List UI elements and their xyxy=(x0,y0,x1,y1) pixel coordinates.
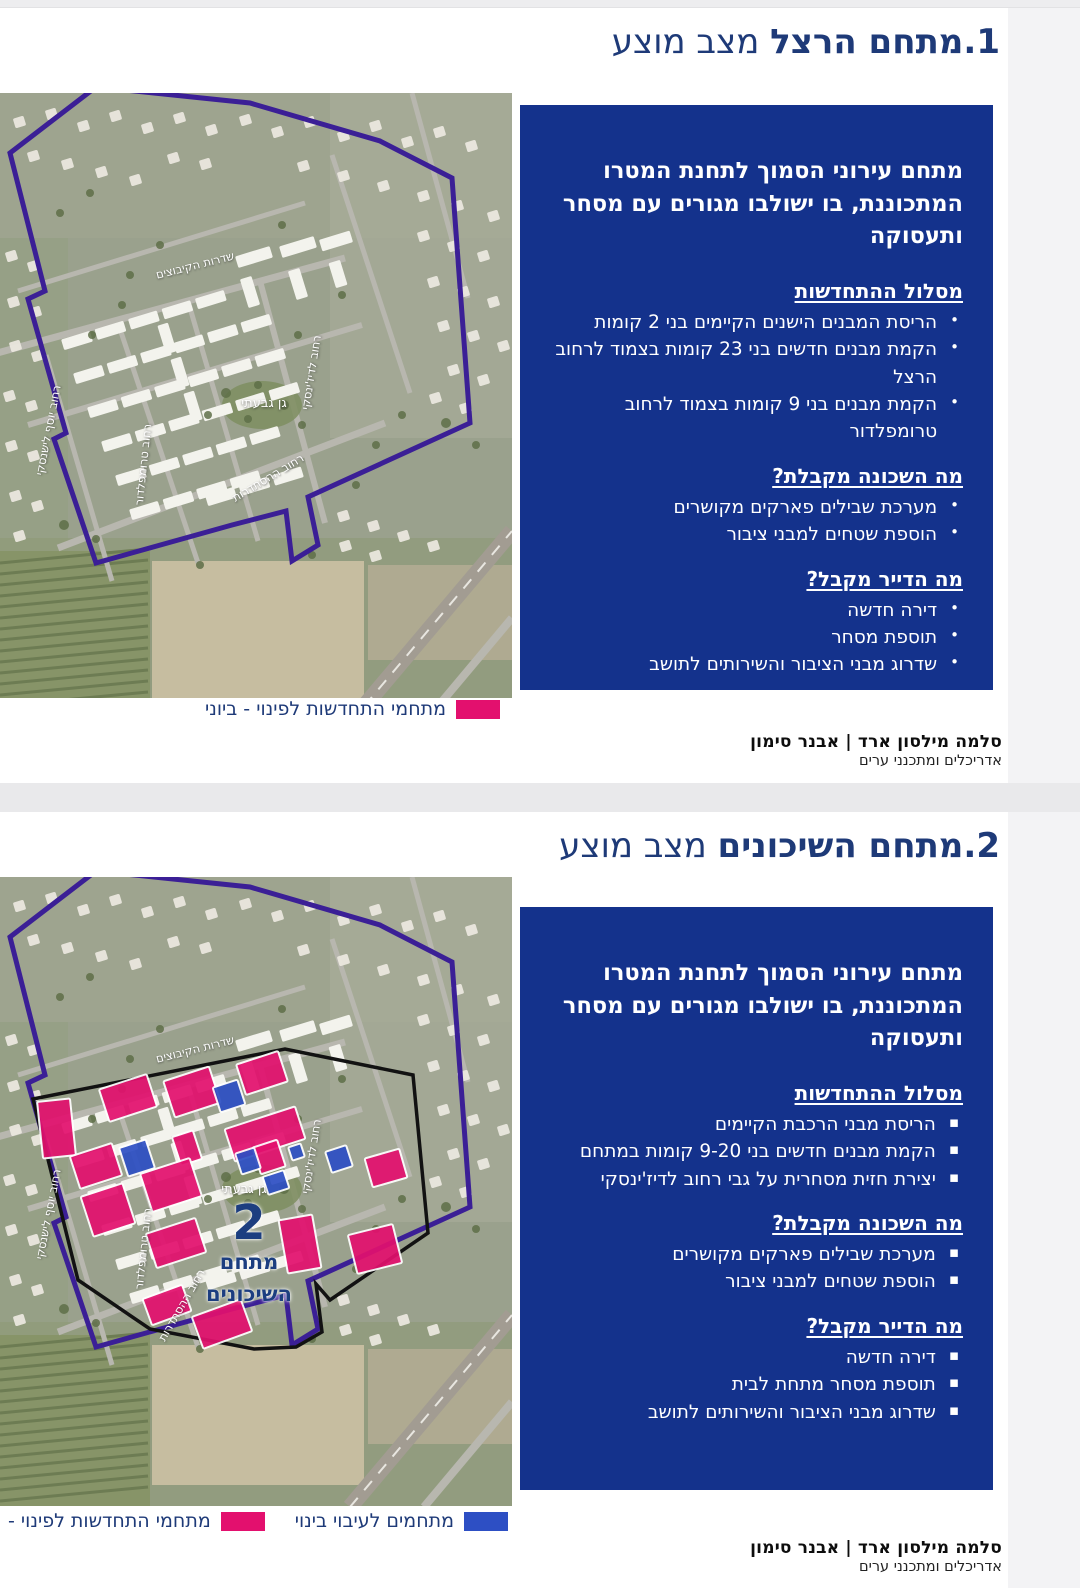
bullet-item: •מערכת שבילים פארקים מקושרים xyxy=(546,494,963,521)
bullet-item: •הקמת מבנים חדשים בני 23 קומות בצמוד לרח… xyxy=(546,336,963,391)
satellite-map-1: שדרות הקיבוצים רחוב לדיז'ינסקי רחוב טרומ… xyxy=(0,93,512,698)
complex-2-word-2: השיכונים xyxy=(206,1282,292,1306)
slide-1-title-main: 1.מתחם הרצל xyxy=(770,22,1000,62)
info-panel-1: מתחם עירוני הסמוך לתחנת המטרו המתכוננת, … xyxy=(520,105,993,690)
section-title: מה הדייר מקבל? xyxy=(546,1314,963,1338)
bullet-text: מערכת שבילים פארקים מקושרים xyxy=(672,1241,936,1268)
bullet-item: ▪שדרוג מבני הציבור והשירותים לתושב xyxy=(546,1399,963,1426)
bullet-text: דירה חדשה xyxy=(847,597,937,624)
bullet-text: הריסת המבנים הישנים הקיימים בני 2 קומות xyxy=(594,309,937,336)
bullet-marker: • xyxy=(950,521,959,548)
bullet-text: שדרוג מבני הציבור והשירותים לתושב xyxy=(648,1399,936,1426)
legend-item: מתחמי התחדשות לפינוי - xyxy=(8,1510,265,1532)
bullet-text: שדרוג מבני הציבור והשירותים לתושב xyxy=(649,651,937,678)
bullet-text: הריסת מבני הרכבת הקיימים xyxy=(715,1111,936,1138)
complex-2-word-1: מתחם xyxy=(220,1250,279,1274)
bullet-marker: ▪ xyxy=(949,1344,959,1371)
slide-2-title: 2.מתחם השיכונים מצב מוצע xyxy=(559,826,1000,866)
bullet-marker: • xyxy=(950,391,959,446)
park-label: גן גבעתי xyxy=(241,396,287,411)
panel-section: מסלול ההתחדשות•הריסת המבנים הישנים הקיימ… xyxy=(546,279,963,446)
bullet-item: ▪דירה חדשה xyxy=(546,1344,963,1371)
section-title: מה השכונה מקבלת? xyxy=(546,1211,963,1235)
bullet-item: ▪הוספת שטחים למבני ציבור xyxy=(546,1268,963,1295)
bullet-item: •הריסת המבנים הישנים הקיימים בני 2 קומות xyxy=(546,309,963,336)
bullet-marker: ▪ xyxy=(949,1268,959,1295)
footer-1: סלמה מילסון ארד | אבנר סימון אדריכלים ומ… xyxy=(750,732,1002,769)
bullet-text: הקמת מבנים חדשים בני 9-20 קומות במתחם xyxy=(580,1138,936,1165)
panel-section: מסלול ההתחדשות▪הריסת מבני הרכבת הקיימים▪… xyxy=(546,1081,963,1193)
bullet-text: דירה חדשה xyxy=(846,1344,936,1371)
satellite-map-2: שדרות הקיבוצים רחוב לדיז'ינסקי רחוב טרומ… xyxy=(0,877,512,1506)
bullet-text: הוספת שטחים למבני ציבור xyxy=(726,521,937,548)
bullet-item: •תוספת מסחר xyxy=(546,624,963,651)
legend-item: מתחמים לעיבוי בינוי xyxy=(295,1510,508,1532)
bullet-text: הקמת מבנים חדשים בני 23 קומות בצמוד לרחו… xyxy=(546,336,937,391)
slide-2-title-status: מצב מוצע xyxy=(559,826,707,866)
architects-logo-subtitle: אדריכלים ומתכנני ערים xyxy=(750,753,1002,769)
panel-section: מה הדייר מקבל?▪דירה חדשה▪תוספת מסחר מתחת… xyxy=(546,1314,963,1426)
bullet-marker: ▪ xyxy=(949,1138,959,1165)
panel-2-heading: מתחם עירוני הסמוך לתחנת המטרו המתכוננת, … xyxy=(546,957,963,1055)
section-title: מסלול ההתחדשות xyxy=(546,279,963,303)
slide-1: 1.מתחם הרצל מצב מוצע שדרות הקיבוצים רחוב… xyxy=(0,8,1008,783)
bullet-marker: • xyxy=(950,651,959,678)
bullet-marker: • xyxy=(950,336,959,391)
panel-1-sections: מסלול ההתחדשות•הריסת המבנים הישנים הקיימ… xyxy=(546,279,963,679)
bullet-marker: • xyxy=(950,624,959,651)
bullet-text: תוספת מסחר מתחת לבית xyxy=(732,1371,936,1398)
bullet-marker: • xyxy=(950,494,959,521)
legend-swatch-legend_pink xyxy=(221,1512,265,1531)
bullet-item: ▪מערכת שבילים פארקים מקושרים xyxy=(546,1241,963,1268)
info-panel-2: מתחם עירוני הסמוך לתחנת המטרו המתכוננת, … xyxy=(520,907,993,1490)
slide-2-title-main: 2.מתחם השיכונים xyxy=(718,826,1000,866)
bullet-item: •שדרוג מבני הציבור והשירותים לתושב xyxy=(546,651,963,678)
bullet-marker: • xyxy=(950,309,959,336)
panel-section: מה השכונה מקבלת?▪מערכת שבילים פארקים מקו… xyxy=(546,1211,963,1296)
section-title: מה הדייר מקבל? xyxy=(546,567,963,591)
legend-2: מתחמים לעיבוי בינוימתחמי התחדשות לפינוי … xyxy=(8,1510,508,1532)
slide-1-title: 1.מתחם הרצל מצב מוצע xyxy=(612,22,1000,62)
architects-logo-text: סלמה מילסון ארד | אבנר סימון xyxy=(750,732,1002,752)
bullet-text: הוספת שטחים למבני ציבור xyxy=(725,1268,936,1295)
legend-swatch-legend_pink xyxy=(456,700,500,719)
legend-label: מתחמים לעיבוי בינוי xyxy=(295,1510,454,1532)
legend-1: מתחמי התחדשות לפינוי - ביוני xyxy=(205,698,500,720)
slide-2: 2.מתחם השיכונים מצב מוצע שדרות הקיבוצים … xyxy=(0,812,1008,1588)
bullet-item: ▪יצירת חזית מסחרית על גבי רחוב לדיז'ינסק… xyxy=(546,1166,963,1193)
bullet-marker: ▪ xyxy=(949,1399,959,1426)
panel-2-sections: מסלול ההתחדשות▪הריסת מבני הרכבת הקיימים▪… xyxy=(546,1081,963,1426)
bullet-item: ▪הקמת מבנים חדשים בני 9-20 קומות במתחם xyxy=(546,1138,963,1165)
bullet-text: מערכת שבילים פארקים מקושרים xyxy=(674,494,938,521)
section-title: מסלול ההתחדשות xyxy=(546,1081,963,1105)
bullet-item: ▪הריסת מבני הרכבת הקיימים xyxy=(546,1111,963,1138)
bullet-item: •דירה חדשה xyxy=(546,597,963,624)
bullet-marker: ▪ xyxy=(949,1166,959,1193)
architects-logo-subtitle: אדריכלים ומתכנני ערים xyxy=(750,1559,1002,1575)
legend-item: מתחמי התחדשות לפינוי - ביוני xyxy=(205,698,500,720)
page-top-strip xyxy=(0,0,1080,8)
complex-2-number: 2 xyxy=(232,1195,265,1251)
bullet-item: ▪תוספת מסחר מתחת לבית xyxy=(546,1371,963,1398)
footer-2: סלמה מילסון ארד | אבנר סימון אדריכלים ומ… xyxy=(750,1538,1002,1575)
aerial-map-2: שדרות הקיבוצים רחוב לדיז'ינסקי רחוב טרומ… xyxy=(0,877,512,1506)
legend-label: מתחמי התחדשות לפינוי - xyxy=(8,1510,211,1532)
architects-logo-text: סלמה מילסון ארד | אבנר סימון xyxy=(750,1538,1002,1558)
bullet-marker: ▪ xyxy=(949,1241,959,1268)
bullet-text: יצירת חזית מסחרית על גבי רחוב לדיז'ינסקי xyxy=(601,1166,936,1193)
bullet-item: •הוספת שטחים למבני ציבור xyxy=(546,521,963,548)
panel-section: מה השכונה מקבלת?•מערכת שבילים פארקים מקו… xyxy=(546,464,963,549)
slide-1-title-status: מצב מוצע xyxy=(612,22,760,62)
legend-swatch-legend_blue xyxy=(464,1512,508,1531)
legend-label: מתחמי התחדשות לפינוי - ביוני xyxy=(205,698,446,720)
bullet-item: •הקמת מבנים בני 9 קומות בצמוד לרחוב טרומ… xyxy=(546,391,963,446)
bullet-text: הקמת מבנים בני 9 קומות בצמוד לרחוב טרומפ… xyxy=(546,391,937,446)
panel-1-heading: מתחם עירוני הסמוך לתחנת המטרו המתכוננת, … xyxy=(546,155,963,253)
aerial-map-1: שדרות הקיבוצים רחוב לדיז'ינסקי רחוב טרומ… xyxy=(0,93,512,698)
bullet-marker: ▪ xyxy=(949,1371,959,1398)
section-title: מה השכונה מקבלת? xyxy=(546,464,963,488)
bullet-marker: ▪ xyxy=(949,1111,959,1138)
panel-section: מה הדייר מקבל?•דירה חדשה•תוספת מסחר•שדרו… xyxy=(546,567,963,679)
bullet-marker: • xyxy=(950,597,959,624)
slide-separator xyxy=(0,783,1080,812)
bullet-text: תוספת מסחר xyxy=(831,624,937,651)
